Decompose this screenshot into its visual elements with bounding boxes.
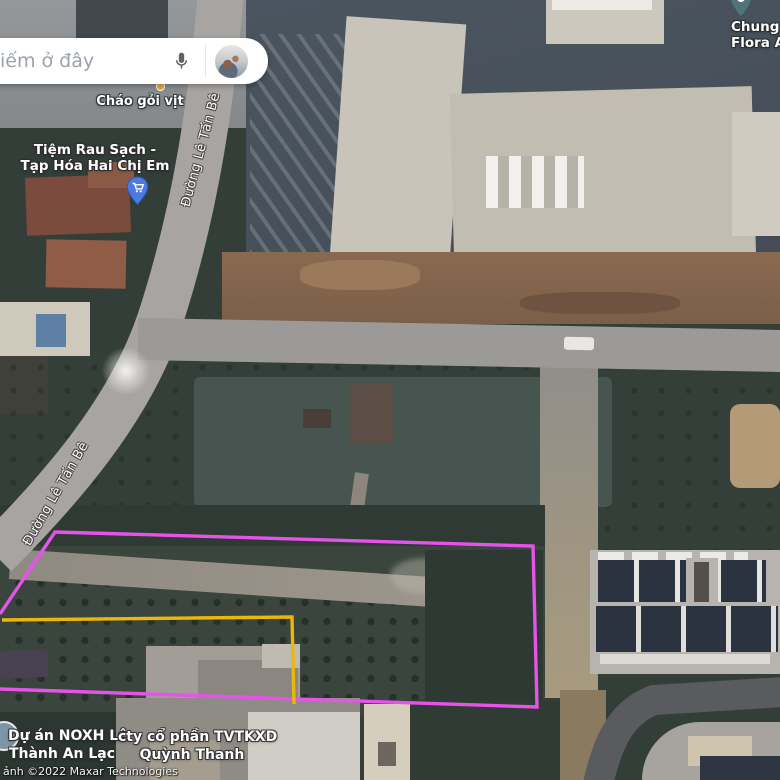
search-divider <box>205 45 206 77</box>
poi-label-chung-cu[interactable]: Chung c Flora Aka <box>731 20 780 51</box>
poi-label-du-an-line2: Thành An Lạc <box>8 745 116 763</box>
account-avatar[interactable] <box>215 45 248 78</box>
poi-label-cty-line2: Quỳnh Thanh <box>118 746 266 764</box>
poi-label-tiem-rau-line1: Tiệm Rau Sạch - <box>20 142 170 158</box>
building-pin-icon[interactable] <box>729 0 753 19</box>
microphone-icon[interactable] <box>172 51 191 71</box>
road-curved-corner <box>598 692 780 780</box>
poi-label-cty[interactable]: cty cổ phần TVTKXD Quỳnh Thanh <box>118 728 266 764</box>
poi-label-tiem-rau[interactable]: Tiệm Rau Sạch - Tạp Hóa Hai Chị Em <box>20 142 170 174</box>
poi-label-chung-cu-line2: Flora Aka <box>731 36 780 52</box>
map-canvas[interactable]: Cháo gỏi vịt Tiệm Rau Sạch - Tạp Hóa Hai… <box>0 0 780 780</box>
map-attribution: ảnh ©2022 Maxar Technologies <box>3 765 178 778</box>
poi-label-tiem-rau-line2: Tạp Hóa Hai Chị Em <box>20 158 170 174</box>
shopping-cart-pin-icon[interactable] <box>126 176 149 207</box>
terrain-truck <box>564 337 594 351</box>
poi-label-cty-line1: cty cổ phần TVTKXD <box>118 728 266 746</box>
search-input[interactable]: iếm ở đây <box>0 38 94 84</box>
poi-label-du-an[interactable]: Dự án NOXH Lê Thành An Lạc <box>8 727 116 763</box>
poi-label-chao-goi-vit[interactable]: Cháo gỏi vịt <box>85 94 195 109</box>
poi-label-du-an-line1: Dự án NOXH Lê <box>8 727 116 745</box>
poi-label-chung-cu-line1: Chung c <box>731 20 780 36</box>
terrain-cloud-blob <box>100 348 152 394</box>
road-horizontal <box>138 339 780 351</box>
search-bar[interactable]: iếm ở đây <box>0 38 268 84</box>
